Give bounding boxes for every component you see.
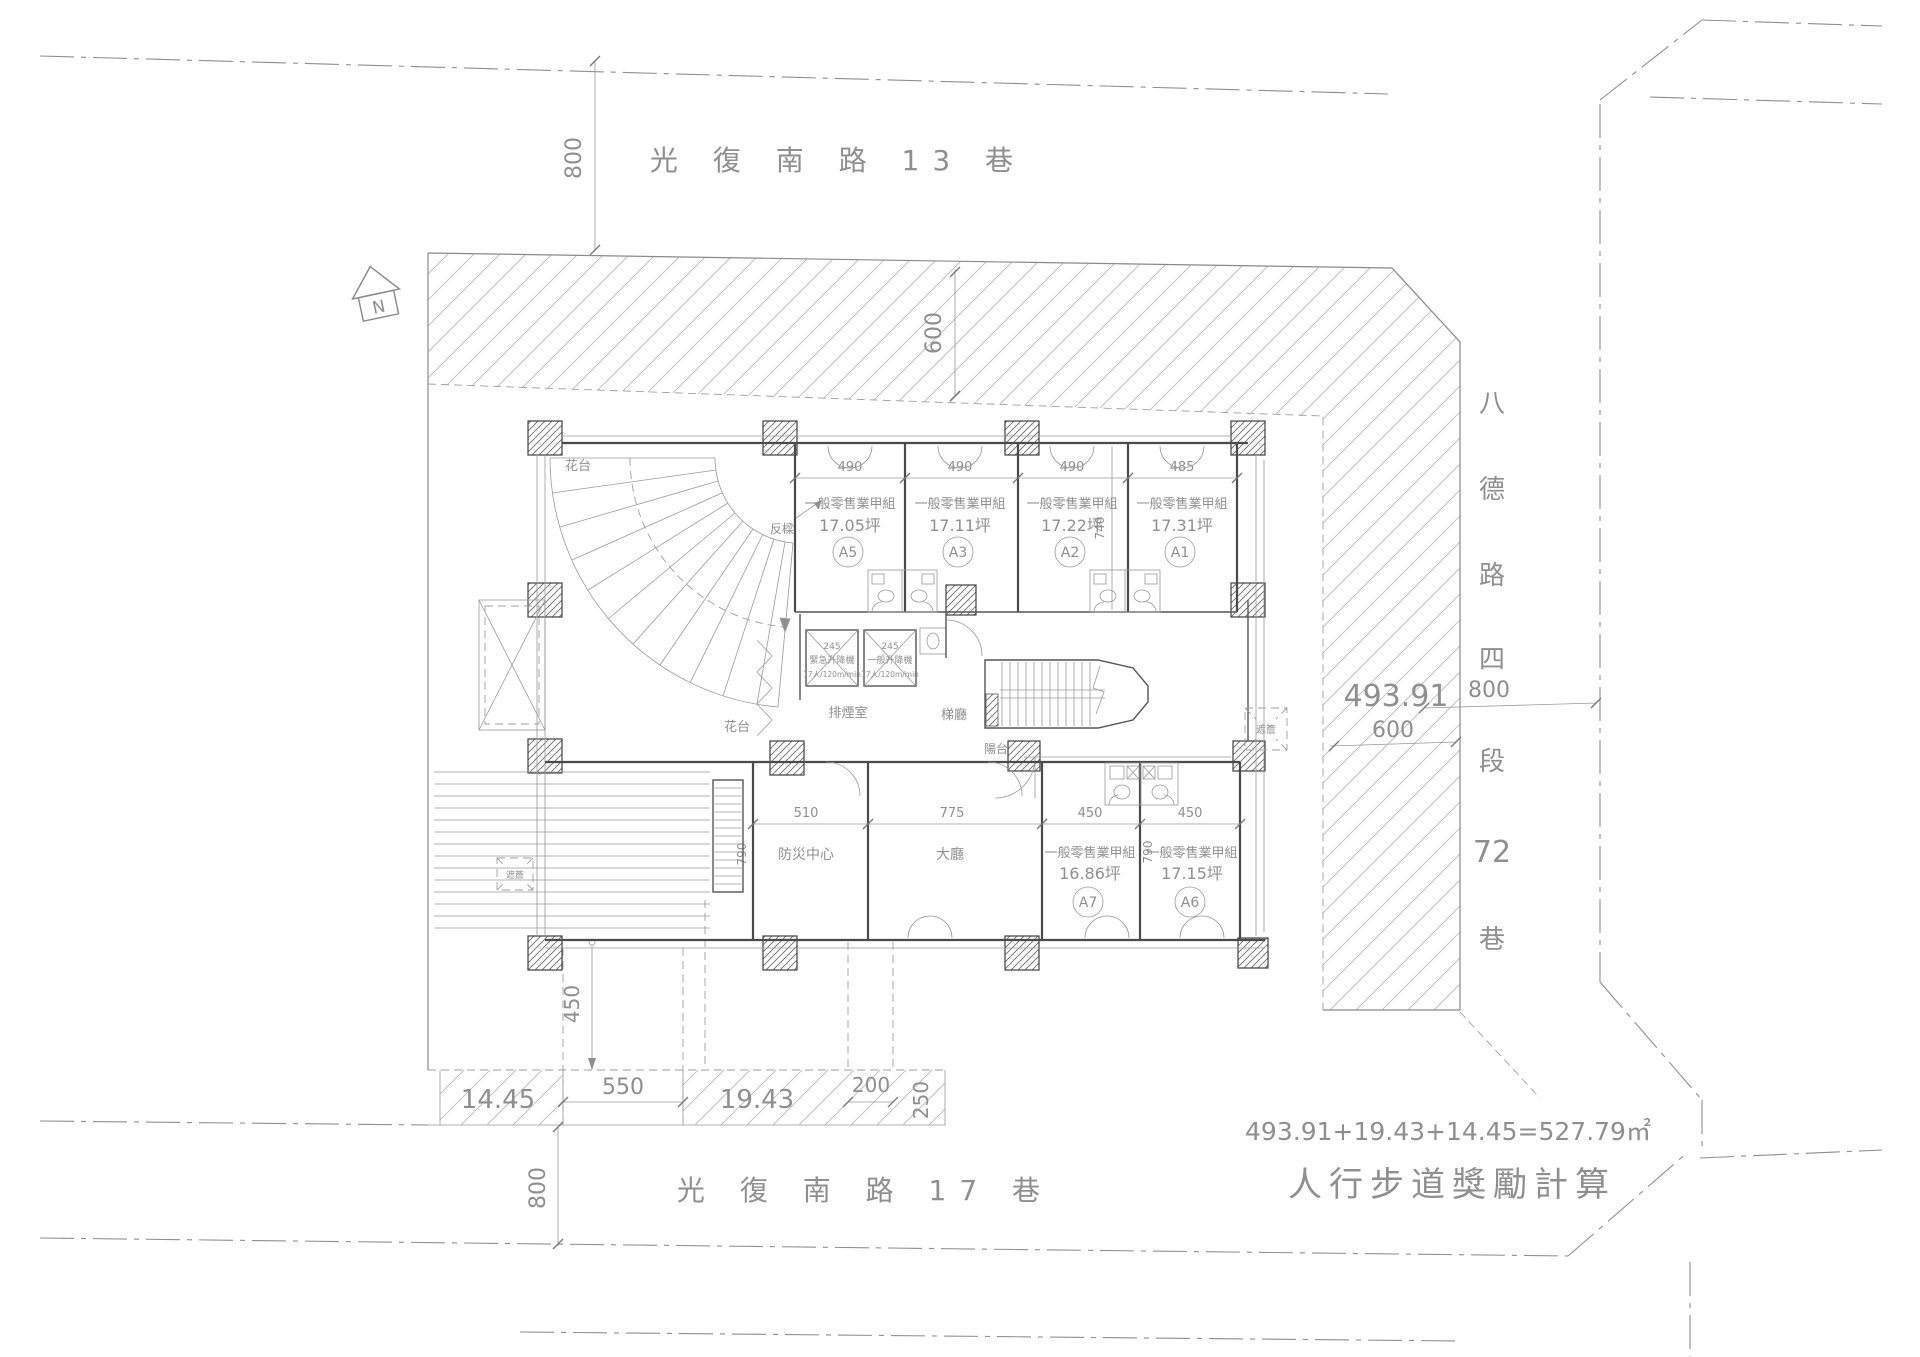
elevator-spec: 17人/120m/min <box>861 670 919 679</box>
street-right-char: 四 <box>1479 645 1505 675</box>
room-inverted-beam: 反樑 <box>770 522 794 536</box>
room-planter-mid: 花台 <box>724 719 750 735</box>
room-canopy-left: 遮簷 <box>506 869 524 881</box>
unit-type: 一般零售業甲組 <box>1136 496 1227 512</box>
unit-type: 一般零售業甲組 <box>1026 496 1117 512</box>
room-canopy-right: 遮簷 <box>1256 723 1276 736</box>
street-name-top: 光 復 南 路 13 巷 <box>650 144 1026 177</box>
unit-id-badge: A5 <box>839 545 857 561</box>
entry-doors-bottom <box>908 916 1224 938</box>
street-right-char: 72 <box>1473 835 1511 870</box>
north-arrow-icon: N <box>347 262 405 323</box>
building-shell <box>537 436 1265 948</box>
unit-type: 一般零售業甲組 <box>1146 845 1237 861</box>
sidewalk-area-1445: 14.45 <box>461 1085 535 1115</box>
dim-walkway-550: 550 <box>602 1075 644 1100</box>
dim-setback-top-600: 600 <box>922 312 947 354</box>
dim-510: 510 <box>794 806 819 821</box>
dim-unit-490: 490 <box>1060 460 1085 475</box>
dim-road-right-800: 800 <box>1468 678 1510 703</box>
unit-area: 17.05坪 <box>819 516 881 535</box>
dim-775: 775 <box>940 806 965 821</box>
road-centerlines <box>40 20 1882 1357</box>
unit-area: 17.11坪 <box>929 516 991 535</box>
dim-450: 450 <box>560 985 584 1023</box>
elevator-name: 緊急升降機 <box>809 654 854 666</box>
unit-id-badge: A3 <box>949 545 967 561</box>
unit-labels-top: 一般零售業甲組 17.05坪 A5 一般零售業甲組 17.11坪 A3 一般零售… <box>804 496 1227 567</box>
dim-250: 250 <box>909 1081 933 1119</box>
room-disaster-center: 防災中心 <box>778 847 834 863</box>
street-name-right: 八 德 路 四 段 72 巷 <box>1473 389 1511 955</box>
unit-area: 17.31坪 <box>1151 516 1213 535</box>
room-smoke-room: 排煙室 <box>828 705 867 721</box>
toilet-module-a5-a3 <box>868 570 937 612</box>
canopy-left: 遮簷 <box>497 858 533 890</box>
street-right-char: 路 <box>1479 561 1505 591</box>
dim-unit-490: 490 <box>948 460 973 475</box>
dim-setback-right-600: 600 <box>1372 718 1414 743</box>
elevator-spec: 17人/120m/min <box>803 670 861 679</box>
elevator-size: 245 <box>823 642 840 652</box>
dim-road-bottom-800: 800 <box>526 1167 551 1209</box>
unit-id-badge: A6 <box>1181 895 1200 911</box>
street-right-char: 德 <box>1479 475 1505 505</box>
unit-type: 一般零售業甲組 <box>914 496 1005 512</box>
dim-790-left: 790 <box>735 843 749 866</box>
floor-plan-drawing: N 光 復 南 路 13 巷 光 復 南 路 17 巷 八 德 路 四 段 72… <box>0 0 1920 1357</box>
elevator-core: 245 緊急升降機 17人/120m/min 245 一般升降機 17人/120… <box>800 614 982 723</box>
dim-road-top-800: 800 <box>562 137 587 179</box>
dim-200: 200 <box>852 1073 890 1097</box>
north-stair <box>985 660 1148 728</box>
unit-area: 17.22坪 <box>1041 516 1103 535</box>
elevator-size: 245 <box>881 642 898 652</box>
skylight-shaft <box>479 600 545 730</box>
unit-area: 17.15坪 <box>1161 864 1223 883</box>
street-right-char: 八 <box>1479 389 1505 419</box>
sidewalk-area-1943: 19.43 <box>720 1085 794 1115</box>
southwest-stair <box>713 780 743 892</box>
dim-unit-490: 490 <box>838 460 863 475</box>
unit-type: 一般零售業甲組 <box>1044 845 1135 861</box>
exterior-steps <box>434 772 710 928</box>
elevator-name: 一般升降機 <box>867 654 912 666</box>
room-stair-hall: 梯廳 <box>941 707 967 723</box>
room-planter-top: 花台 <box>565 458 591 474</box>
street-right-char: 段 <box>1479 747 1505 777</box>
street-name-bottom: 光 復 南 路 17 巷 <box>677 1174 1053 1207</box>
unit-id-badge: A7 <box>1079 895 1097 911</box>
room-lobby: 大廳 <box>936 846 964 863</box>
toilet-module-a2-a1 <box>1090 570 1160 612</box>
planter-mid: 花台 <box>724 640 772 736</box>
sidewalk-calc-title: 人行步道獎勵計算 <box>1288 1165 1616 1205</box>
floor-plan-sheet: N 光 復 南 路 13 巷 光 復 南 路 17 巷 八 德 路 四 段 72… <box>0 0 1920 1357</box>
room-balcony: 陽台 <box>984 741 1008 756</box>
dim-450-a7: 450 <box>1078 806 1103 821</box>
curved-stair <box>550 458 793 707</box>
sidewalk-area-formula: 493.91+19.43+14.45=527.79㎡ <box>1245 1117 1651 1146</box>
dim-unit-485: 485 <box>1170 460 1195 475</box>
toilet-module-a7-a6 <box>1105 763 1178 805</box>
north-letter: N <box>371 297 388 319</box>
unit-id-badge: A1 <box>1171 545 1189 561</box>
unit-area: 16.86坪 <box>1059 864 1121 883</box>
unit-id-badge: A2 <box>1061 545 1079 561</box>
site-area-493: 493.91 <box>1344 679 1449 714</box>
dim-450-a6: 450 <box>1178 806 1203 821</box>
street-right-char: 巷 <box>1479 925 1505 955</box>
